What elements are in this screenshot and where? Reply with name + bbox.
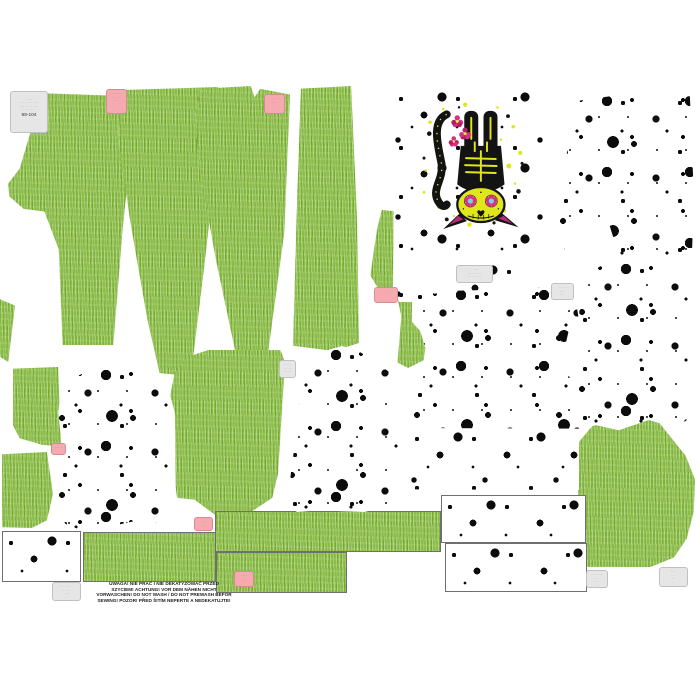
pattern-piece-pants-back-1 xyxy=(195,86,291,368)
pattern-piece-hood-splatter-right xyxy=(577,260,693,432)
label-micro-text: ···· ··· ··· ·· ·· xyxy=(112,91,121,102)
pattern-piece-green-rounded xyxy=(578,408,695,567)
label-gray-back: ·· ··· ··· · ···· xyxy=(551,283,574,300)
label-gray-bottom-right-1: ····· ··· ·· · ·· ··· · ·· xyxy=(586,570,608,588)
label-micro-text: · ····· ···· · ···· ··· ···· ··· xyxy=(467,267,481,278)
label-gray-sleeve: · ···· ··· ·· ·· ··· xyxy=(279,360,296,378)
pattern-piece-splatter-rect-left xyxy=(2,531,81,582)
label-micro-text: ··· ·· xyxy=(55,445,62,449)
label-micro-text: ·· ·· xyxy=(383,289,389,293)
label-micro-text: ·· ··· ··· · xyxy=(271,96,278,104)
label-micro-text: ·· ··· ··· · ···· xyxy=(559,285,566,296)
care-warning-text: UWAGA! NIE PRAĆ I NIE DEKATYZOWAĆ PRZED … xyxy=(88,581,240,604)
label-micro-text: ···· ·· · ·· ·· xyxy=(671,569,676,584)
pattern-piece-green-sliver xyxy=(0,298,15,362)
label-gray-bottom-left: ··· ·· ···· ·· ··· · · ··· ·· xyxy=(52,582,81,601)
sugar-skull-cat-graphic xyxy=(417,93,529,239)
pattern-piece-sleeve-center xyxy=(287,346,412,512)
pattern-piece-pocket-1 xyxy=(13,367,61,448)
pattern-piece-strip-1 xyxy=(83,532,216,582)
pattern-piece-splatter-strip-3 xyxy=(445,543,587,592)
pattern-piece-pants-back-2 xyxy=(293,86,359,351)
label-gray-bottom-right-2: ···· ·· · ·· ·· xyxy=(659,567,688,587)
label-micro-text: · ··· ·· · xyxy=(241,573,247,581)
fabric-panel-preview: · ···· ··· ·· ····· ····· ···· ··· ·· ··… xyxy=(0,0,700,700)
pattern-piece-splatter-strip-2 xyxy=(441,495,586,543)
label-micro-text: · ···· ··· ·· ·· ··· xyxy=(284,362,291,373)
pattern-piece-back-panel xyxy=(412,286,579,442)
label-gray-neck: · ····· ···· · ···· ··· ···· ··· xyxy=(456,265,493,283)
pattern-piece-pocket-2 xyxy=(2,452,53,528)
label-size-info: · ···· ··· ·· ····· ····· ···· ··· ·· ··… xyxy=(10,91,48,133)
label-pink-2: ·· ··· ··· · xyxy=(264,94,285,114)
label-micro-text: ··· ·· xyxy=(202,519,206,527)
label-micro-text: · ···· ··· ·· ····· ····· ···· ··· ·· ··… xyxy=(18,97,39,112)
label-micro-text: ····· ··· ·· · ·· ··· · ·· xyxy=(592,572,603,587)
label-pink-4: ··· ·· xyxy=(51,443,66,455)
size-text: 98-104 xyxy=(12,113,46,119)
label-micro-text: ··· ·· ···· ·· ··· · · ··· ·· xyxy=(60,584,73,599)
label-pink-1: ···· ··· ··· ·· ·· xyxy=(106,89,127,114)
pattern-piece-hood-splatter-left xyxy=(57,366,176,532)
pattern-piece-strip-2 xyxy=(215,511,441,552)
label-pink-5: ··· ·· xyxy=(194,517,213,531)
pattern-piece-hood-green xyxy=(169,350,285,522)
label-pink-3: ·· ·· xyxy=(374,287,398,303)
pattern-piece-splatter-strip-1 xyxy=(409,428,579,490)
